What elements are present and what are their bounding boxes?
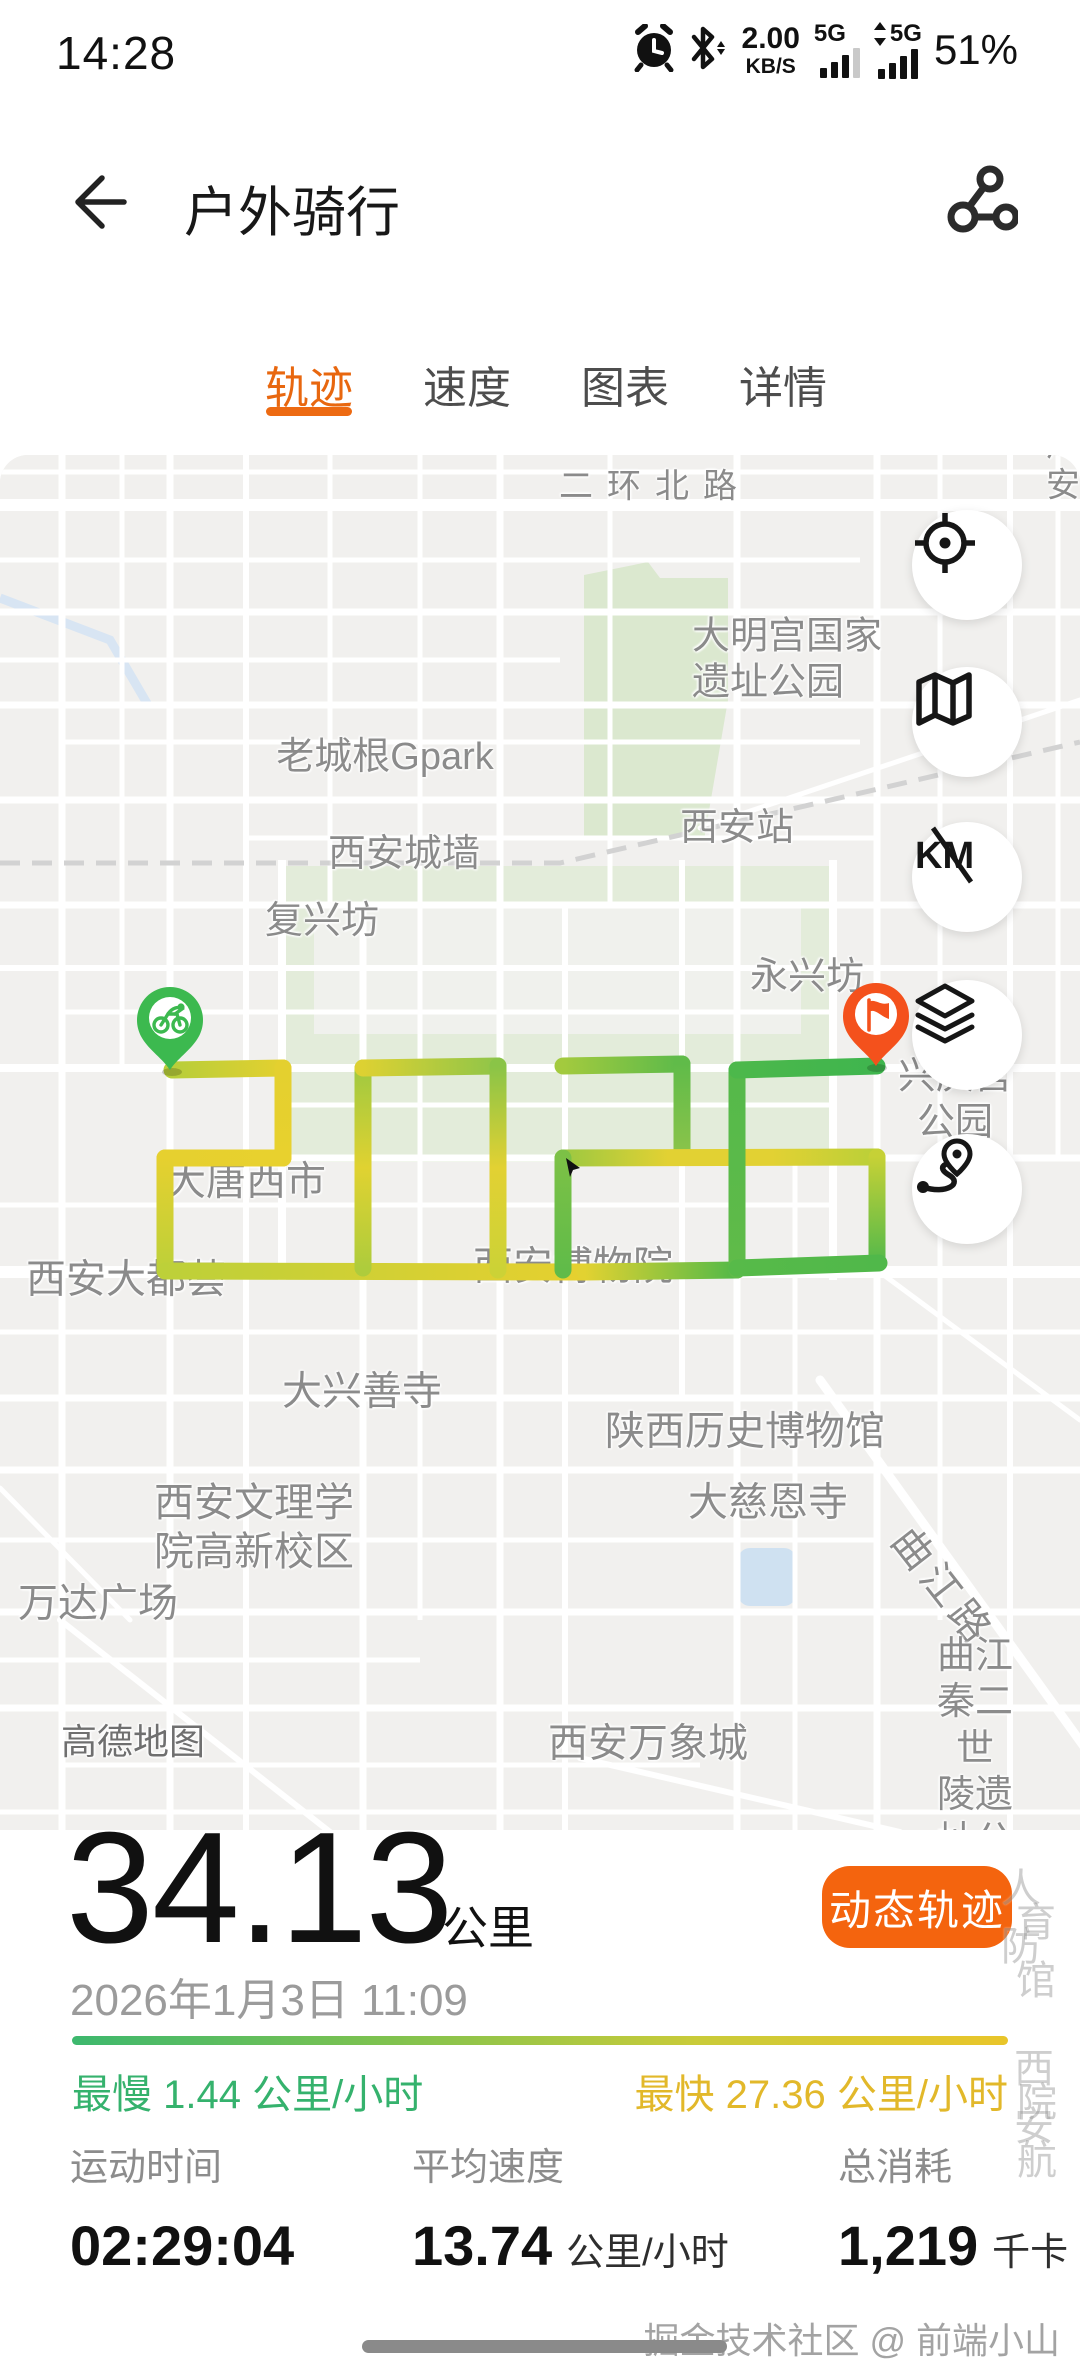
layers-button[interactable] <box>912 980 1022 1090</box>
route-track-segment <box>363 1066 498 1068</box>
status-bar: 14:28 2.00 KB/S <box>0 0 1080 92</box>
community-watermark: 掘金技术社区 @ 前端小山 <box>643 2312 1060 2364</box>
km-markers-button[interactable]: KM <box>912 822 1022 932</box>
route-overview-button[interactable] <box>912 1134 1022 1244</box>
distance-value: 34.13 <box>66 1798 451 1979</box>
share-route-button[interactable] <box>938 162 1018 242</box>
signal-sim1: 5G <box>814 22 860 78</box>
bluetooth-icon <box>688 23 728 78</box>
page-title: 户外骑行 <box>184 168 400 247</box>
battery-level: 51% <box>934 26 1018 74</box>
back-button[interactable] <box>58 166 130 238</box>
dynamic-track-button[interactable]: 动态轨迹 <box>822 1866 1012 1948</box>
signal-sim2: 5G <box>872 21 922 79</box>
tab-details[interactable]: 详情 <box>729 346 837 410</box>
signal-bars-sim1 <box>820 48 860 78</box>
arrow-left-icon <box>58 225 130 242</box>
route-track-segment <box>172 1068 283 1070</box>
tab-speed[interactable]: 速度 <box>413 346 521 410</box>
locate-button[interactable] <box>912 510 1022 620</box>
map-viewport[interactable]: 二环北路广安大明宫国家 遗址公园老城根Gpark西安站西安城墙复兴坊永兴坊兴庆宫… <box>0 455 1080 1830</box>
map-bleed-label: 院航 <box>1017 2070 1080 2186</box>
sim2-network-type: 5G <box>890 22 922 46</box>
map-style-button[interactable] <box>912 667 1022 777</box>
network-speed-value: 2.00 <box>742 24 800 54</box>
metric-avg-speed: 平均速度 13.74公里/小时 <box>412 2136 729 2278</box>
signal-bars-sim2 <box>878 49 918 79</box>
metric-duration: 运动时间 02:29:04 <box>70 2136 308 2278</box>
route-track-segment <box>737 1066 877 1070</box>
share-route-icon <box>938 229 1018 246</box>
home-indicator[interactable] <box>362 2340 727 2353</box>
speed-gradient-bar <box>72 2036 1008 2045</box>
route-track-segment <box>563 1064 682 1066</box>
route-track-segment <box>563 1157 877 1158</box>
tab-chart[interactable]: 图表 <box>571 346 679 410</box>
sim1-network-type: 5G <box>814 22 846 46</box>
map-bleed-label: 育馆 <box>1016 1890 1080 2006</box>
slowest-speed-legend: 最慢 1.44 公里/小时 <box>72 2062 423 2120</box>
alarm-icon <box>632 24 676 77</box>
tab-bar: 轨迹 速度 图表 详情 <box>0 346 1080 436</box>
route-track-segment <box>737 1263 879 1268</box>
fastest-speed-legend: 最快 27.36 公里/小时 <box>635 2062 1008 2120</box>
ride-datetime: 2026年1月3日 11:09 <box>70 1964 468 2028</box>
distance-unit: 公里 <box>442 1892 534 1958</box>
summary-panel: 34.13 公里 动态轨迹 2026年1月3日 11:09 最慢 1.44 公里… <box>0 1830 1080 2376</box>
clock-time: 14:28 <box>56 26 176 80</box>
route-track-segment <box>585 1270 737 1272</box>
updown-arrows-icon <box>872 21 888 47</box>
network-speed-unit: KB/S <box>746 56 796 77</box>
tab-track[interactable]: 轨迹 <box>255 346 363 410</box>
app-screen: 14:28 2.00 KB/S <box>0 0 1080 2376</box>
header: 户外骑行 <box>0 158 1080 248</box>
network-speed: 2.00 KB/S <box>742 24 800 77</box>
route-track-segment <box>165 1271 585 1272</box>
